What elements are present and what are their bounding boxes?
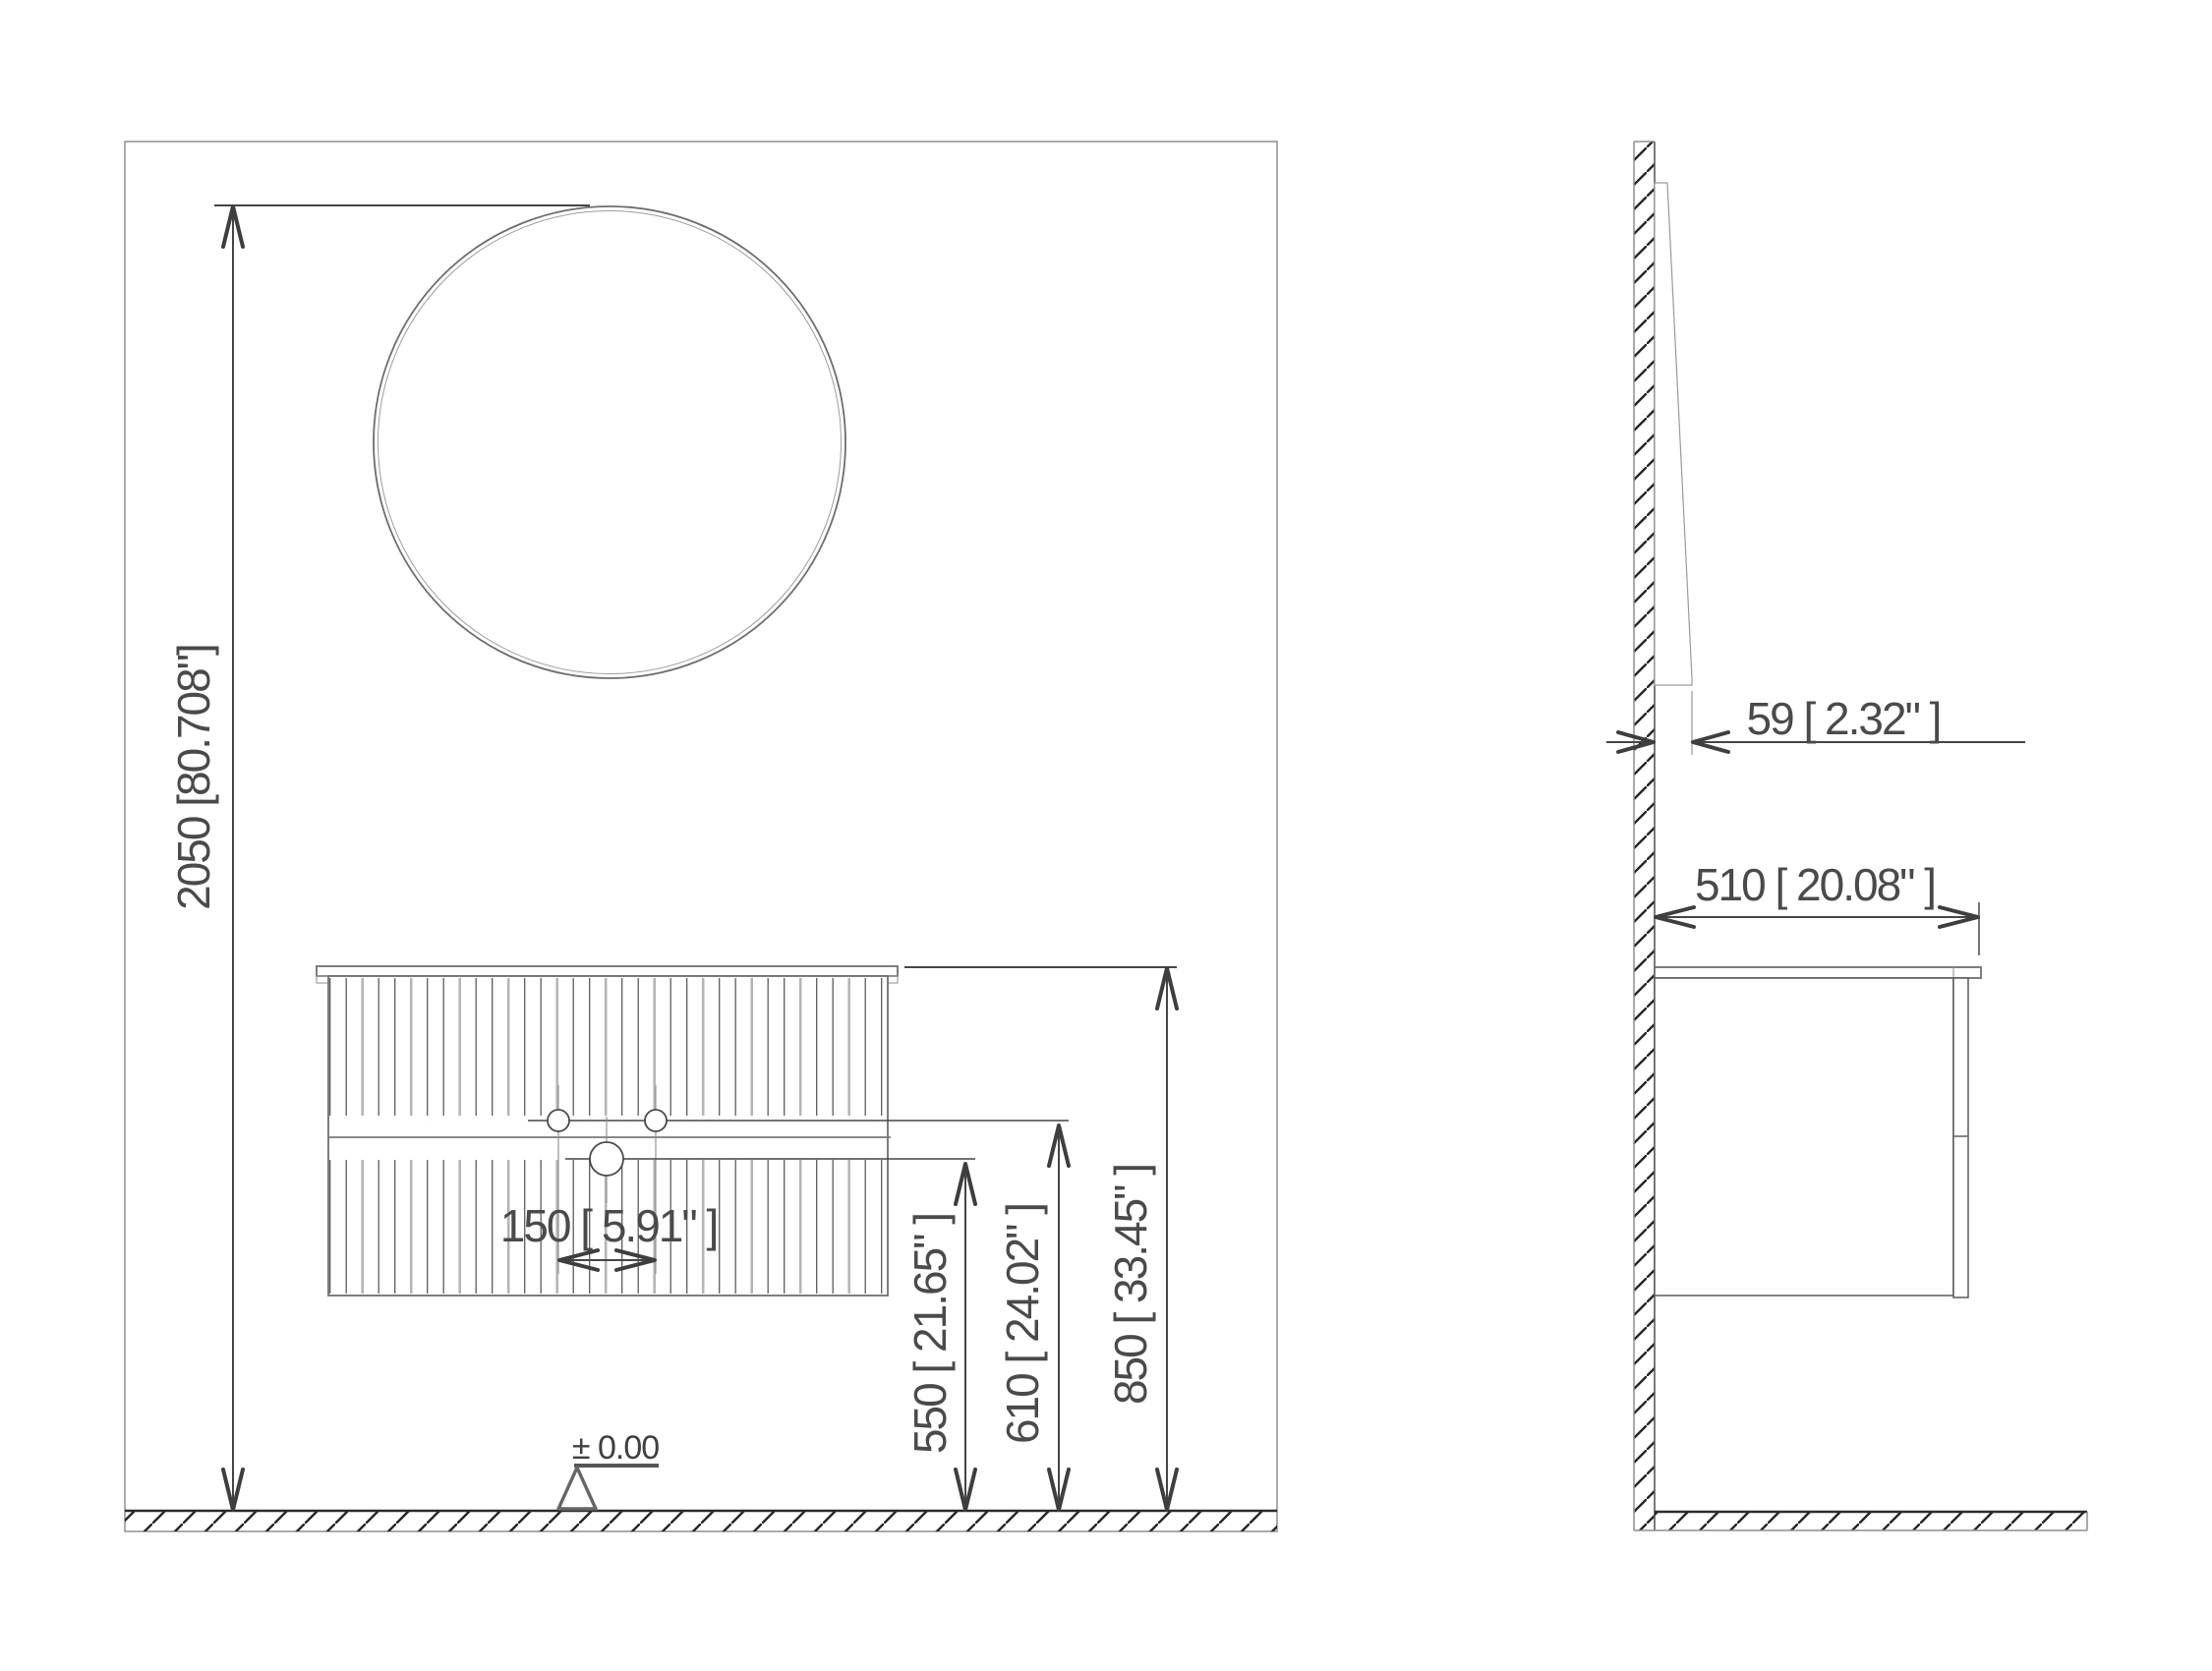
dim-cabinet-depth: 510 [ 20.08" ] [1655, 859, 1979, 955]
dim-outlet-height: 610 [ 24.02" ] [997, 1124, 1069, 1511]
mirror-side-profile [1655, 183, 1692, 685]
front-view: 2050 [80.708"] 150 [ 5.91" ] 550 [ 21.65… [125, 142, 1277, 1531]
drawing-sheet: 2050 [80.708"] 150 [ 5.91" ] 550 [ 21.65… [0, 0, 2212, 1671]
dim-mirror-depth-label: 59 [ 2.32" ] [1747, 693, 1941, 744]
dim-mirror-depth: 59 [ 2.32" ] [1606, 691, 2025, 755]
side-view: 59 [ 2.32" ] 510 [ 20.08" ] [1606, 142, 2087, 1530]
faucet-hole-left [548, 1110, 569, 1131]
countertop-slab [317, 966, 898, 976]
datum-label: ± 0.00 [572, 1429, 659, 1467]
dim-outlet-height-label: 610 [ 24.02" ] [997, 1204, 1048, 1444]
side-floor-hatch [1655, 1512, 2087, 1530]
cabinet-side-body [1655, 978, 1953, 1296]
side-floor [1634, 1512, 2087, 1530]
front-floor-hatch [125, 1511, 1277, 1531]
countertop-side-slab [1655, 967, 1981, 978]
dim-counter-height-label: 850 [ 33.45" ] [1105, 1165, 1156, 1405]
dim-faucet-spacing-label: 150 [ 5.91" ] [500, 1200, 718, 1251]
dim-total-height-label: 2050 [80.708"] [168, 645, 219, 910]
faucet-hole-right [645, 1110, 667, 1131]
vanity-cabinet-side [1655, 978, 1968, 1297]
dim-drain-height: 550 [ 21.65" ] [904, 1163, 975, 1511]
upper-drawer-fluting [329, 978, 887, 1116]
countertop-side [1655, 967, 1981, 978]
drain-hole [590, 1142, 623, 1176]
mirror-circle-outer [374, 206, 845, 678]
side-wall-hatch [1634, 142, 1655, 1530]
cabinet-side-front-panel [1953, 978, 1968, 1297]
side-wall [1634, 142, 1655, 1530]
countertop-left-cap [317, 976, 329, 983]
dim-cabinet-depth-label: 510 [ 20.08" ] [1695, 859, 1935, 910]
dim-drain-height-label: 550 [ 21.65" ] [904, 1214, 956, 1454]
floor-datum: ± 0.00 [558, 1429, 659, 1509]
front-floor [125, 1511, 1277, 1531]
datum-triangle-icon [558, 1468, 596, 1509]
mirror-front [374, 206, 845, 678]
vanity-technical-drawing: 2050 [80.708"] 150 [ 5.91" ] 550 [ 21.65… [0, 0, 2212, 1671]
